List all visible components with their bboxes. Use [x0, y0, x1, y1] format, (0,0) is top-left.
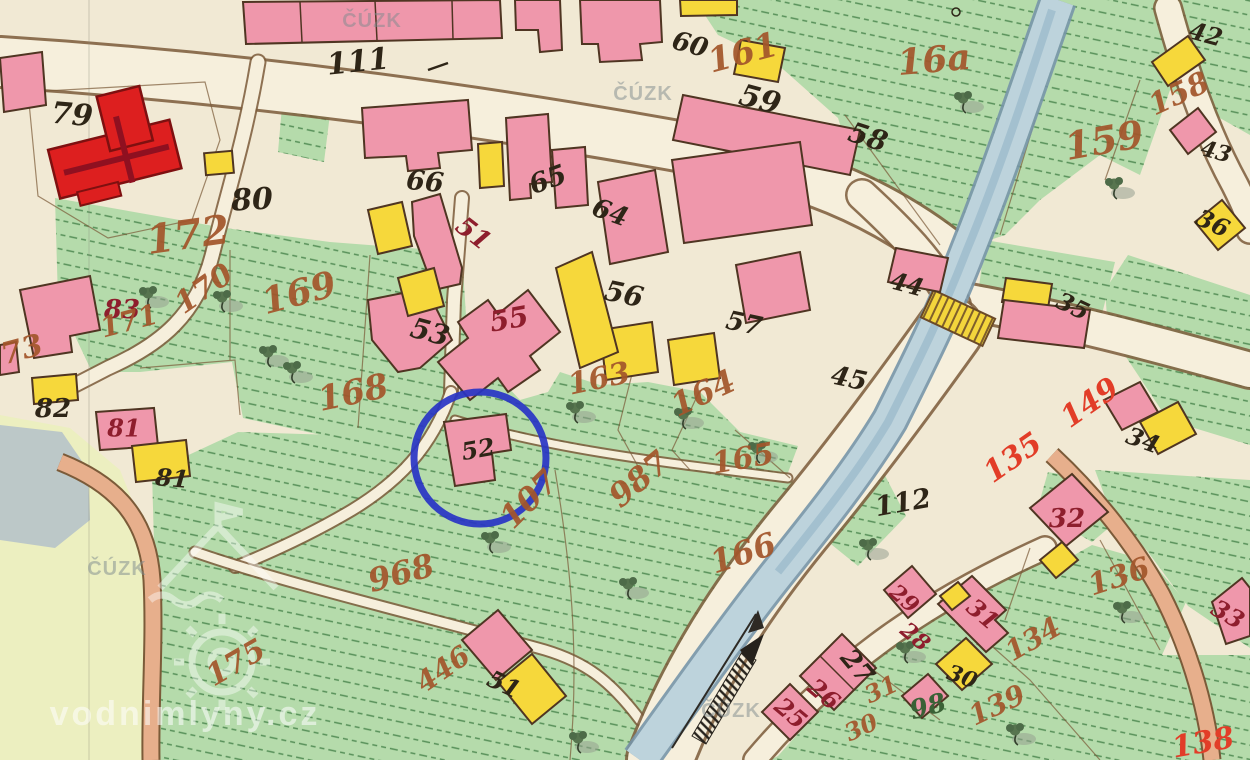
parcel-label-52: 52: [459, 432, 497, 466]
parcel-label-32: 32: [1049, 504, 1085, 534]
parcel-label-79: 79: [50, 96, 95, 135]
parcel-label-81: 81: [106, 414, 140, 443]
watermark-cuzk: ČÚZK: [613, 81, 673, 105]
parcel-label-16a: 16a: [896, 36, 973, 84]
parcel-label-82: 82: [34, 394, 71, 424]
parcel-label-111: 111: [325, 41, 391, 82]
watermark-cuzk: ČÚZK: [701, 698, 761, 722]
parcel-label-55: 55: [487, 299, 531, 338]
watermark-site: vodnimlyny.cz: [50, 695, 321, 733]
watermark-cuzk: ČÚZK: [87, 556, 147, 580]
parcel-label-81: 81: [153, 462, 190, 494]
parcel-label-80: 80: [229, 181, 274, 218]
watermark-cuzk: ČÚZK: [342, 8, 402, 32]
parcel-label-66: 66: [405, 165, 445, 199]
map-canvas: 1117980666560595842433664535657454435348…: [0, 0, 1250, 760]
cadastral-map: 1117980666560595842433664535657454435348…: [0, 0, 1250, 760]
